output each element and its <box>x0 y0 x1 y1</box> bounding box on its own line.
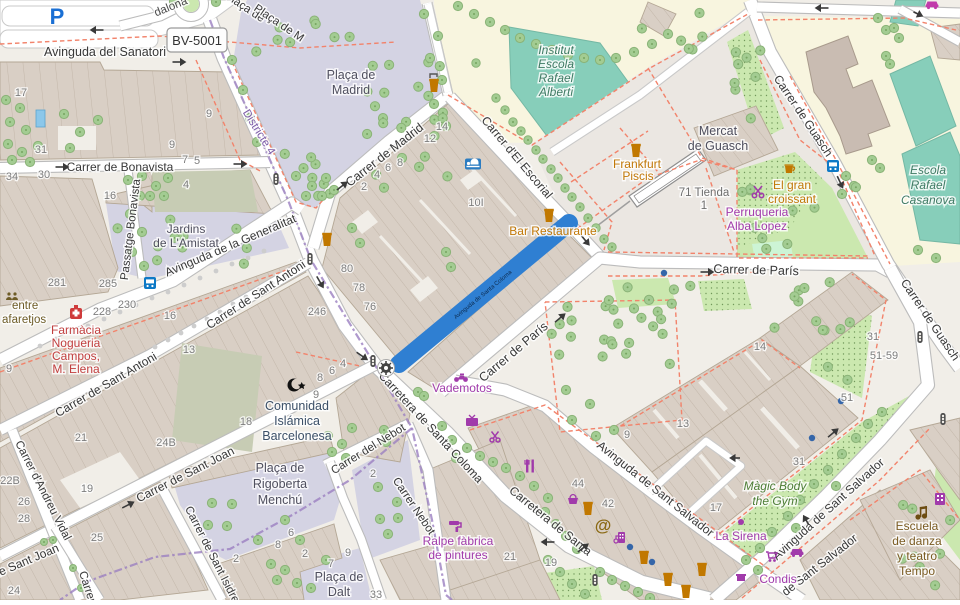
svg-text:31: 31 <box>793 456 805 468</box>
svg-text:17: 17 <box>710 502 722 514</box>
svg-text:19: 19 <box>545 557 557 569</box>
svg-text:Islámica: Islámica <box>274 414 320 428</box>
svg-text:24: 24 <box>8 585 20 597</box>
svg-text:Mercat: Mercat <box>699 124 738 138</box>
svg-text:the Gym: the Gym <box>752 494 797 508</box>
svg-text:2: 2 <box>233 553 239 565</box>
svg-text:7: 7 <box>328 558 334 570</box>
svg-text:de L'Amistat: de L'Amistat <box>153 236 219 250</box>
svg-text:17: 17 <box>15 87 27 99</box>
svg-text:Màgic Body: Màgic Body <box>744 479 808 493</box>
svg-text:Institut: Institut <box>538 43 574 57</box>
svg-text:9: 9 <box>624 429 630 441</box>
svg-text:2: 2 <box>361 181 367 193</box>
svg-text:33: 33 <box>370 589 382 600</box>
svg-text:21: 21 <box>504 551 516 563</box>
svg-text:28: 28 <box>18 513 30 525</box>
svg-text:8: 8 <box>275 539 281 551</box>
svg-text:4: 4 <box>340 358 346 370</box>
svg-text:de pintures: de pintures <box>428 548 487 562</box>
svg-text:Casanova: Casanova <box>901 193 955 207</box>
svg-text:19: 19 <box>81 483 93 495</box>
svg-text:9: 9 <box>345 547 351 559</box>
svg-text:entre: entre <box>12 300 38 312</box>
svg-text:22B: 22B <box>0 475 20 487</box>
svg-text:13: 13 <box>183 344 195 356</box>
svg-text:Escola: Escola <box>538 57 574 71</box>
svg-text:Dalt: Dalt <box>328 585 351 599</box>
svg-text:Piscis: Piscis <box>622 169 653 183</box>
svg-text:Plaça de: Plaça de <box>327 68 376 82</box>
svg-text:42: 42 <box>602 498 614 510</box>
svg-text:Nogueria: Nogueria <box>52 336 101 350</box>
svg-text:51-59: 51-59 <box>870 350 898 362</box>
svg-text:y teatro: y teatro <box>897 549 937 563</box>
svg-text:Carrer de Bonavista: Carrer de Bonavista <box>67 160 174 174</box>
svg-text:9: 9 <box>6 363 12 375</box>
svg-text:2: 2 <box>370 468 376 480</box>
svg-text:Alba Lopez: Alba Lopez <box>727 219 787 233</box>
svg-text:1: 1 <box>701 200 707 212</box>
svg-text:246: 246 <box>308 306 326 318</box>
svg-text:Jardins: Jardins <box>167 222 206 236</box>
svg-text:@: @ <box>595 516 612 535</box>
svg-text:de Guasch: de Guasch <box>688 139 749 153</box>
svg-text:M. Elena: M. Elena <box>52 362 100 376</box>
svg-text:80: 80 <box>341 263 353 275</box>
svg-text:228: 228 <box>93 306 111 318</box>
svg-text:13: 13 <box>677 418 689 430</box>
svg-text:34: 34 <box>6 171 18 183</box>
svg-text:Madrid: Madrid <box>332 83 370 97</box>
svg-text:9: 9 <box>206 108 212 120</box>
svg-text:Bar Restaurante: Bar Restaurante <box>509 224 597 238</box>
svg-text:Barcelonesa: Barcelonesa <box>262 429 332 443</box>
svg-text:25: 25 <box>91 532 103 544</box>
svg-text:281: 281 <box>48 277 66 289</box>
svg-text:14: 14 <box>436 121 448 133</box>
svg-text:51: 51 <box>841 392 853 404</box>
svg-text:Rafael: Rafael <box>911 178 946 192</box>
svg-text:44: 44 <box>572 478 584 490</box>
svg-text:BV-5001: BV-5001 <box>172 33 222 48</box>
svg-text:croissant: croissant <box>768 192 817 206</box>
svg-text:de danza: de danza <box>892 534 942 548</box>
svg-text:Farmàcia: Farmàcia <box>51 323 101 337</box>
svg-text:6: 6 <box>385 162 391 174</box>
svg-text:30: 30 <box>38 169 50 181</box>
svg-text:Plaça de: Plaça de <box>315 570 364 584</box>
svg-text:Comunidad: Comunidad <box>265 399 329 413</box>
svg-text:6: 6 <box>288 527 294 539</box>
svg-text:9: 9 <box>313 389 319 401</box>
svg-text:afaretjos: afaretjos <box>2 314 46 326</box>
svg-text:230: 230 <box>118 299 136 311</box>
svg-text:Campos,: Campos, <box>52 349 100 363</box>
svg-text:Ralpe fàbrica: Ralpe fàbrica <box>423 534 494 548</box>
svg-text:6: 6 <box>329 365 335 377</box>
svg-text:Perruqueria: Perruqueria <box>726 205 789 219</box>
svg-text:8: 8 <box>317 372 323 384</box>
svg-text:La Sirena: La Sirena <box>715 529 767 543</box>
svg-text:Carrer de París: Carrer de París <box>713 262 799 278</box>
svg-text:16: 16 <box>104 190 116 202</box>
svg-text:Rafael: Rafael <box>539 71 574 85</box>
svg-text:Condis: Condis <box>759 572 796 586</box>
svg-text:18: 18 <box>240 416 252 428</box>
svg-text:Escola: Escola <box>910 163 946 177</box>
svg-text:31: 31 <box>35 144 47 156</box>
svg-text:El gran: El gran <box>773 178 811 192</box>
svg-text:76: 76 <box>364 301 376 313</box>
svg-text:Escuela: Escuela <box>896 519 939 533</box>
svg-text:285: 285 <box>99 278 117 290</box>
svg-text:71 Tienda: 71 Tienda <box>679 187 730 199</box>
svg-text:4: 4 <box>374 169 380 181</box>
svg-text:9: 9 <box>169 139 175 151</box>
svg-text:8: 8 <box>397 157 403 169</box>
svg-text:12: 12 <box>424 133 436 145</box>
svg-text:Vademotos: Vademotos <box>432 381 492 395</box>
svg-text:31: 31 <box>867 331 879 343</box>
svg-text:2: 2 <box>302 548 308 560</box>
svg-text:Alberti: Alberti <box>538 85 573 99</box>
svg-text:Plaça de: Plaça de <box>256 461 305 475</box>
svg-text:4: 4 <box>183 179 189 191</box>
svg-text:P: P <box>50 4 65 29</box>
svg-text:5: 5 <box>194 155 200 167</box>
svg-text:16: 16 <box>164 310 176 322</box>
svg-text:Menchú: Menchú <box>258 493 303 507</box>
svg-text:26: 26 <box>18 496 30 508</box>
svg-text:7: 7 <box>182 154 188 166</box>
svg-text:14: 14 <box>754 341 766 353</box>
svg-text:24B: 24B <box>156 437 176 449</box>
svg-text:10I: 10I <box>468 197 483 209</box>
svg-text:Tempo: Tempo <box>899 564 935 578</box>
svg-text:Rigoberta: Rigoberta <box>253 477 307 491</box>
svg-text:78: 78 <box>353 282 365 294</box>
svg-text:Avinguda del Sanatori: Avinguda del Sanatori <box>44 45 166 59</box>
svg-text:21: 21 <box>75 432 87 444</box>
